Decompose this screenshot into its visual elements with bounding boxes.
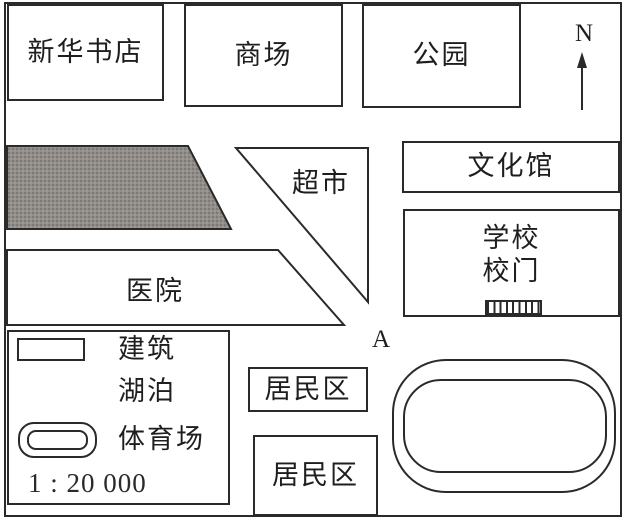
- park-box: 公园: [362, 4, 521, 108]
- legend-lake-label: 湖泊: [118, 376, 176, 407]
- legend-stadium-swatch-inner: [27, 430, 88, 450]
- school-gate-icon: [485, 300, 542, 315]
- legend-building-label: 建筑: [118, 334, 176, 365]
- map-scale-text: 1 : 20 000: [28, 468, 147, 499]
- cultural-center-label: 文化馆: [468, 151, 555, 182]
- bookstore-label: 新华书店: [28, 37, 144, 68]
- hospital-label: 医院: [108, 276, 202, 307]
- mall-label: 商场: [235, 40, 293, 71]
- school-box: 学校 校门: [403, 209, 620, 317]
- school-gate-label: 校门: [483, 256, 541, 287]
- school-label: 学校: [483, 223, 541, 254]
- supermarket-label: 超市: [288, 168, 354, 199]
- park-label: 公园: [413, 40, 471, 71]
- lake-shape: [7, 146, 231, 229]
- north-label: N: [569, 20, 599, 49]
- north-arrow-head: [577, 52, 587, 68]
- residential-top-label: 居民区: [265, 374, 352, 405]
- residential-bottom-label: 居民区: [272, 460, 359, 491]
- mall-box: 商场: [184, 4, 343, 107]
- cultural-center-box: 文化馆: [402, 141, 620, 193]
- bookstore-box: 新华书店: [7, 4, 164, 101]
- point-a-marker: A: [366, 326, 396, 355]
- legend-stadium-label: 体育场: [118, 424, 205, 455]
- residential-bottom-box: 居民区: [253, 435, 378, 516]
- legend-building-swatch: [17, 338, 85, 361]
- schematic-map: 新华书店 商场 公园 N 文化馆 学校 校门 超市 医院 A 居民区 居民区 建…: [0, 0, 625, 520]
- residential-top-box: 居民区: [248, 367, 368, 412]
- stadium-inner-ring: [403, 379, 607, 473]
